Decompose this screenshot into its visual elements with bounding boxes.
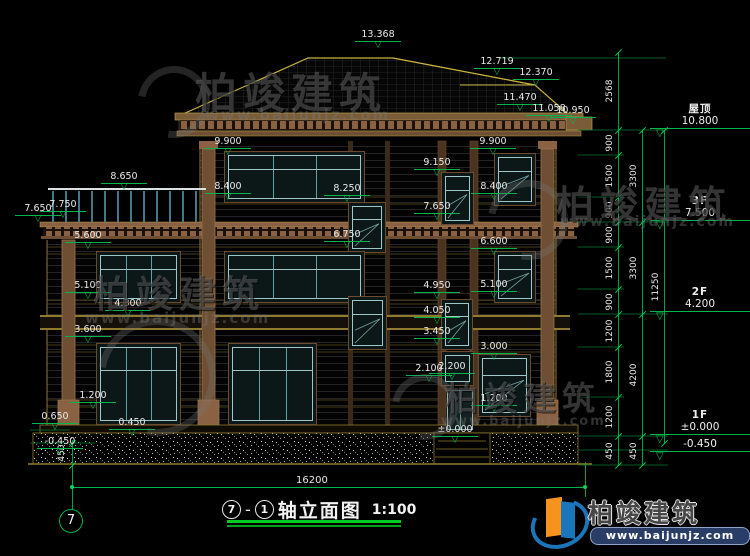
level-triangle-icon: ▽	[513, 80, 559, 87]
dim-chain-0	[618, 52, 619, 465]
elevation-value: 9.900	[479, 136, 506, 147]
window-mullion	[259, 348, 260, 420]
elevation-marker-9.900: 9.900▽	[205, 137, 251, 156]
elevation-value: 8.400	[214, 181, 241, 192]
floor-level-line: ▽	[650, 311, 750, 312]
elevation-marker-8.650: 8.650▽	[101, 172, 147, 191]
elevation-marker-3.450: 3.450▽	[414, 327, 460, 346]
level-triangle-icon: ▽	[414, 214, 460, 221]
logo-url: www.baijunjz.com	[590, 527, 750, 545]
floor-elevation: -0.450	[650, 438, 750, 450]
floor-elevation: 10.800	[650, 115, 750, 127]
window	[232, 347, 313, 421]
dim-segment-label: 1200	[605, 309, 615, 353]
level-triangle-icon: ▽	[414, 318, 460, 325]
elevation-marker-5.100: 5.100▽	[471, 280, 517, 299]
level-triangle-icon: ▽	[656, 312, 664, 321]
elevation-value: 12.370	[519, 67, 552, 78]
dim-endpoint	[583, 485, 587, 489]
title-scale: 1:100	[372, 502, 417, 518]
elevation-marker-5.600: 5.600▽	[65, 231, 111, 250]
elevation-value: 3.000	[480, 341, 507, 352]
dim-segment-label: 2568	[605, 69, 615, 113]
elevation-value: 0.650	[41, 411, 68, 422]
floor-level-line: ▽	[650, 434, 750, 435]
floor-marker-屋顶: 屋顶10.800▽	[650, 103, 750, 129]
title-underline-2	[227, 525, 401, 527]
floor-marker-2F: 2F4.200▽	[650, 286, 750, 312]
elevation-marker-0.650: 0.650▽	[32, 412, 78, 431]
floor-elevation: ±0.000	[650, 421, 750, 433]
window-transom	[233, 370, 312, 371]
level-triangle-icon: ▽	[205, 149, 251, 156]
logo-company-name: 柏竣建筑	[588, 494, 700, 530]
elevation-value: 11.470	[503, 92, 536, 103]
title-underline	[227, 520, 401, 523]
elevation-marker-12.370: 12.370▽	[513, 68, 559, 87]
level-triangle-icon: ▽	[65, 243, 111, 250]
title-axis-start: 7	[222, 500, 241, 519]
window-mullion	[286, 348, 287, 420]
floor-elevation: 4.200	[650, 298, 750, 310]
level-triangle-icon: ▽	[101, 184, 147, 191]
elevation-marker-3.600: 3.600▽	[65, 325, 111, 344]
elevation-value: 3.450	[423, 326, 450, 337]
level-triangle-icon: ▽	[355, 42, 401, 49]
elevation-value: 4.950	[423, 280, 450, 291]
terrace-railing-post	[117, 191, 119, 222]
window-mullion	[316, 256, 317, 298]
elevation-value: 8.650	[110, 171, 137, 182]
elevation-value: 10.950	[556, 105, 589, 116]
title-sep: -	[245, 500, 251, 519]
elevation-drawing-canvas: 13.368▽12.719▽12.370▽11.470▽11.058▽10.95…	[0, 0, 750, 556]
terrace-railing-post	[143, 191, 145, 222]
elevation-marker-13.368: 13.368▽	[355, 30, 401, 49]
elevation-marker-3.000: 3.000▽	[471, 342, 517, 361]
title-name: 轴立面图	[278, 496, 362, 523]
elevation-marker-9.900: 9.900▽	[470, 137, 516, 156]
title-block: 7 - 1 轴立面图 1:100	[222, 496, 416, 523]
dim-endpoint	[70, 485, 74, 489]
terrace-railing-post	[182, 191, 184, 222]
dim-segment-label: 4200	[629, 353, 639, 397]
watermark-url: www.baijunjz.com	[441, 414, 606, 429]
dim-segment-label: 450	[605, 429, 615, 473]
dim-segment-label: 1800	[605, 350, 615, 394]
elevation-marker-7.650: 7.650▽	[15, 204, 61, 223]
level-triangle-icon: ▽	[414, 339, 460, 346]
dim-segment-label: 450	[629, 429, 639, 473]
bottom-dim-line	[72, 487, 585, 488]
elevation-marker-10.950: 10.950▽	[550, 106, 596, 125]
floor-marker--0.450: -0.450▽	[650, 438, 750, 452]
title-axis-end: 1	[255, 500, 274, 519]
floor-name: 2F	[650, 286, 750, 298]
elevation-marker-8.250: 8.250▽	[324, 184, 370, 203]
level-triangle-icon: ▽	[205, 194, 251, 201]
floor-name: 1F	[650, 409, 750, 421]
level-triangle-icon: ▽	[65, 337, 111, 344]
elevation-value: 13.368	[361, 29, 394, 40]
level-triangle-icon: ▽	[550, 118, 596, 125]
elevation-marker-8.400: 8.400▽	[205, 182, 251, 201]
terrace-railing-post	[169, 191, 171, 222]
floor-marker-1F: 1F±0.000▽	[650, 409, 750, 435]
elevation-value: 2.200	[438, 361, 465, 372]
level-triangle-icon: ▽	[471, 292, 517, 299]
level-triangle-icon: ▽	[432, 437, 478, 444]
level-triangle-icon: ▽	[656, 452, 664, 461]
level-triangle-icon: ▽	[656, 129, 664, 138]
watermark-text: 柏竣建筑	[445, 372, 601, 420]
window-transom	[229, 169, 360, 170]
level-triangle-icon: ▽	[414, 293, 460, 300]
level-triangle-icon: ▽	[471, 354, 517, 361]
elevation-value: 12.719	[480, 56, 513, 67]
elevation-value: -0.450	[45, 436, 76, 447]
window	[352, 300, 383, 346]
elevation-marker-9.150: 9.150▽	[414, 158, 460, 177]
logo-building-icon	[546, 497, 562, 537]
bottom-dim-value: 16200	[296, 475, 328, 486]
floor-level-line: ▽	[650, 451, 750, 452]
terrace-railing-post	[104, 191, 106, 222]
level-triangle-icon: ▽	[37, 449, 83, 456]
casement-symbol-icon	[353, 301, 385, 348]
level-triangle-icon: ▽	[324, 242, 370, 249]
level-triangle-icon: ▽	[15, 216, 61, 223]
watermark-url: www.baijunjz.com	[85, 309, 270, 327]
elevation-value: 8.250	[333, 183, 360, 194]
terrace-railing-post	[130, 191, 132, 222]
watermark-url: www.baijunjz.com	[205, 106, 390, 124]
elevation-marker--0.450: -0.450▽	[37, 437, 83, 456]
floor-level-line: ▽	[650, 128, 750, 129]
terrace-railing-post	[195, 191, 197, 222]
elevation-value: 5.600	[74, 230, 101, 241]
elevation-value: 5.100	[480, 279, 507, 290]
terrace-railing-post	[91, 191, 93, 222]
elevation-value: 9.150	[423, 157, 450, 168]
terrace-railing-post	[156, 191, 158, 222]
watermark-url: www.baijunjz.com	[560, 214, 735, 230]
elevation-value: 9.900	[214, 136, 241, 147]
level-triangle-icon: ▽	[414, 170, 460, 177]
elevation-value: 7.650	[423, 201, 450, 212]
elevation-value: 4.050	[423, 305, 450, 316]
floor-name: 屋顶	[650, 103, 750, 115]
elevation-value: 7.650	[24, 203, 51, 214]
level-triangle-icon: ▽	[32, 424, 78, 431]
elevation-marker-6.750: 6.750▽	[324, 230, 370, 249]
elevation-marker-7.650: 7.650▽	[414, 202, 460, 221]
dim-segment-label: 3300	[629, 246, 639, 290]
window-mullion	[273, 256, 274, 298]
window-mullion	[316, 156, 317, 198]
elevation-marker-4.050: 4.050▽	[414, 306, 460, 325]
logo-building-icon-2	[561, 501, 575, 538]
company-logo: 柏竣建筑 www.baijunjz.com	[528, 492, 746, 552]
level-triangle-icon: ▽	[470, 149, 516, 156]
window-mullion	[273, 156, 274, 198]
axis-bubble: 7	[59, 509, 83, 533]
elevation-marker-4.950: 4.950▽	[414, 281, 460, 300]
level-triangle-icon: ▽	[324, 196, 370, 203]
elevation-value: 6.750	[333, 229, 360, 240]
